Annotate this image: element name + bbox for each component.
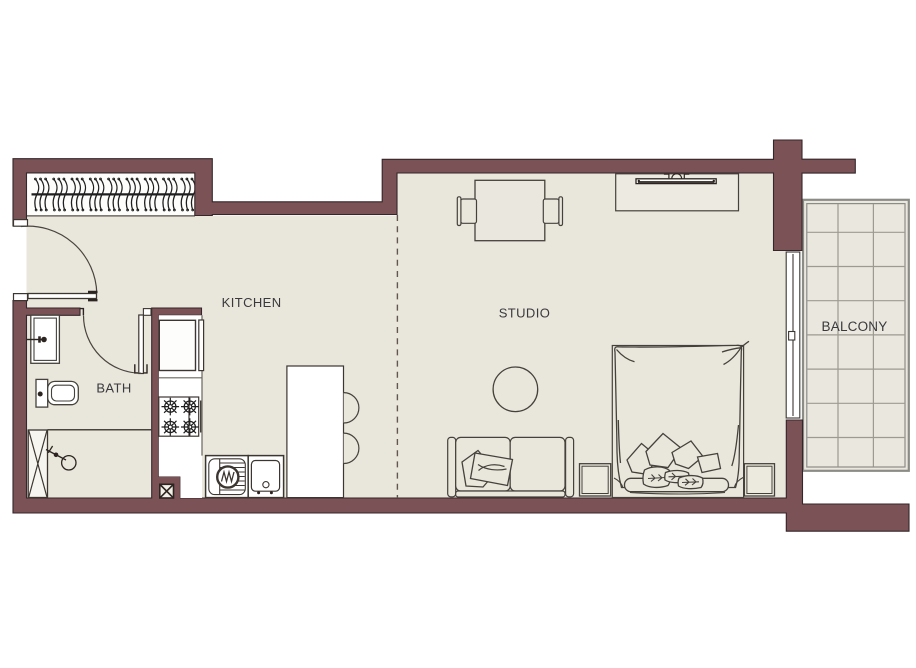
- svg-text:BALCONY: BALCONY: [822, 319, 888, 334]
- svg-text:BATH: BATH: [96, 381, 131, 396]
- svg-text:STUDIO: STUDIO: [499, 306, 551, 321]
- svg-text:KITCHEN: KITCHEN: [222, 295, 282, 310]
